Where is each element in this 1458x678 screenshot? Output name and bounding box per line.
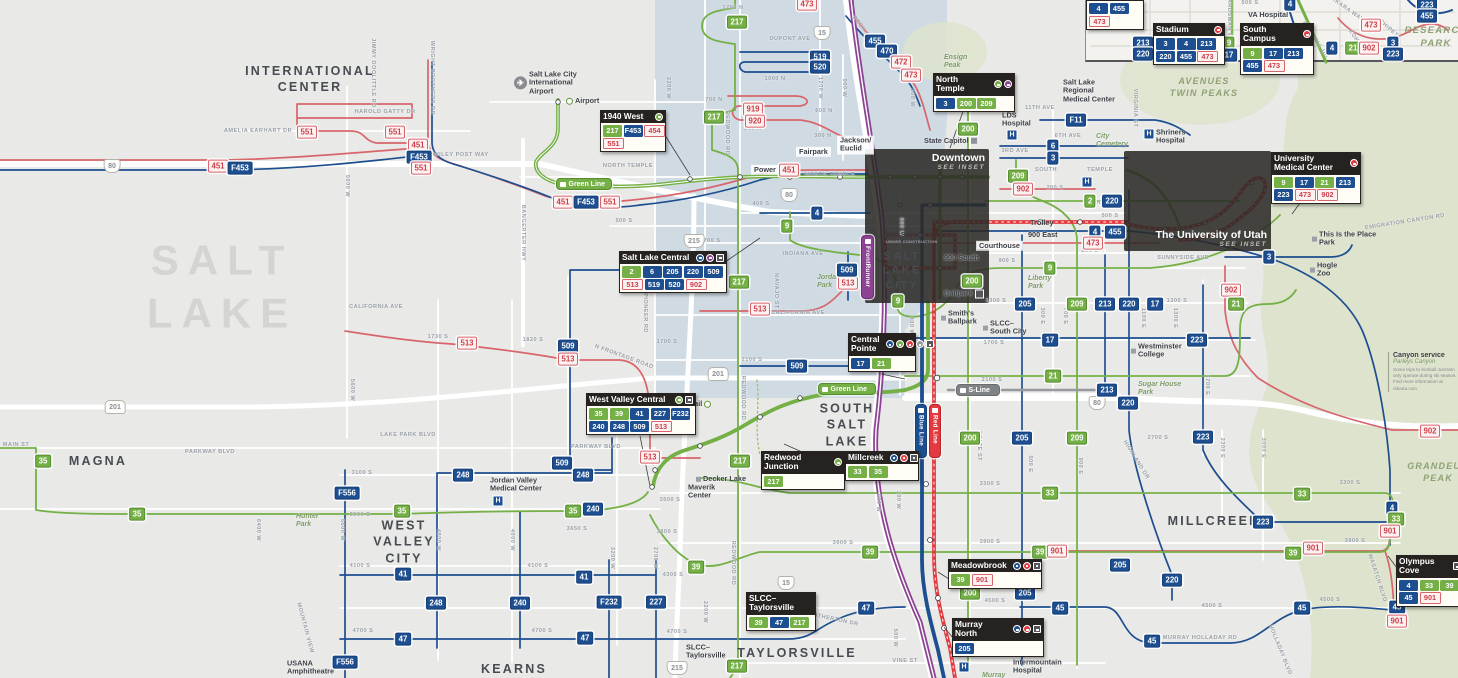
sq-icon — [1312, 237, 1317, 242]
street-label: 3500 S — [350, 512, 371, 518]
street-label: 2300 E — [1219, 438, 1225, 459]
hospital-icon: H — [493, 496, 504, 507]
blue-line-icon — [1013, 625, 1021, 633]
region-label: RESEARCH PARK — [1405, 25, 1458, 51]
route-badge-220: 220 — [1156, 51, 1175, 62]
callout-body: 3200209 — [933, 96, 1015, 112]
place-label: State Capitol — [924, 137, 977, 145]
route-badge-3: 3 — [1156, 38, 1175, 49]
route-badge-39: 39 — [1440, 580, 1458, 591]
place-label-text: Courthouse — [979, 242, 1020, 250]
hospital-icon: H — [1082, 177, 1093, 188]
street-label: WILEY POST WAY — [433, 152, 488, 158]
inset-label: DowntownSEE INSET — [932, 152, 985, 171]
place-label: VA Hospital — [1248, 11, 1288, 19]
callout-route-row: 513519520902 — [622, 279, 724, 290]
street-label: REDWOOD RD — [740, 376, 746, 420]
route-badge-473: 473 — [1197, 51, 1218, 62]
route-badge-513: 513 — [457, 337, 477, 350]
place-label-text: SLCC– Taylorsville — [686, 644, 726, 661]
route-badge-902: 902 — [1420, 425, 1440, 438]
region-label: GRANDEUR PEAK — [1407, 460, 1458, 484]
route-badge-509: 509 — [558, 340, 578, 353]
station-callout-slcc-taylorsville: SLCC–Taylorsville3947217 — [746, 592, 816, 631]
street-label: 5600 W — [339, 519, 345, 541]
highway-shield-80: 80 — [781, 188, 798, 202]
route-badge-35: 35 — [35, 455, 51, 468]
route-badge-4: 4 — [1177, 38, 1196, 49]
street-label: LAKE PARK BLVD — [380, 432, 436, 438]
street-label: 900 W — [841, 79, 847, 98]
route-badge-451: 451 — [208, 160, 228, 173]
street-label: 1700 S — [657, 339, 678, 345]
train-icon — [932, 408, 938, 413]
street-label: 1000 N — [764, 76, 785, 82]
street-label: 900 S — [998, 258, 1015, 264]
route-badge-509: 509 — [552, 457, 572, 470]
place-label-text: Maverik Center — [688, 484, 715, 501]
station-callout-redwood-junction: Redwood Junction217 — [761, 451, 845, 490]
place-label: ✈Salt Lake City International Airport — [514, 70, 577, 95]
route-badge-551: 551 — [411, 162, 431, 175]
place-label-text: Jordan Park — [817, 274, 840, 290]
callout-route-row: 4455 — [1089, 3, 1141, 14]
place-label-text: Jordan Valley Medical Center — [490, 477, 542, 494]
callout-body: 353941227F232240248509513 — [586, 406, 696, 435]
callout-route-row: 3335 — [848, 466, 916, 477]
route-badge-240: 240 — [583, 503, 603, 516]
place-label: Jordan Valley Medical Center — [490, 477, 542, 494]
route-badge-f232: F232 — [671, 408, 690, 419]
frontrunner-icon — [1004, 80, 1012, 88]
route-badge-9: 9 — [781, 220, 792, 233]
place-label-text: Westminster College — [1138, 343, 1182, 360]
place-label-text: Salt Lake City International Airport — [529, 70, 577, 95]
place-label-text: Jackson/ Euclid — [840, 137, 871, 154]
route-badge-21: 21 — [872, 358, 891, 369]
callout-route-row: 34213 — [1156, 38, 1222, 49]
green-line-icon — [834, 458, 842, 466]
callout-title: Murray North — [955, 620, 1007, 639]
route-badge-f11: F11 — [1066, 114, 1086, 127]
street-label: MAIN ST — [3, 442, 30, 448]
rail-icon — [926, 340, 934, 348]
route-badge-21: 21 — [1315, 177, 1334, 188]
hospital-icon: H — [1007, 130, 1018, 141]
route-badge-223: 223 — [1274, 189, 1293, 200]
route-badge-248: 248 — [453, 469, 473, 482]
route-badge-33: 33 — [1042, 487, 1058, 500]
street-label: 3300 S — [1340, 480, 1361, 486]
street-label: WRIGHT BROTHERS DR — [429, 41, 435, 115]
street-label: 2200 W — [665, 77, 671, 99]
street-label: 5600 W — [349, 379, 355, 401]
street-label: 2100 S — [742, 357, 763, 363]
callout-body: 34213220455473 — [1153, 36, 1225, 65]
route-badge-41: 41 — [395, 568, 411, 581]
callout-header: Millcreek — [845, 451, 919, 464]
route-badge-2: 2 — [1084, 195, 1095, 208]
street-label: 500 S — [1241, 0, 1258, 6]
street-label: 11TH AVE — [1025, 105, 1055, 111]
route-badge-473: 473 — [1361, 19, 1381, 32]
callout-header: South Campus — [1240, 23, 1314, 46]
street-label: 4500 S — [985, 598, 1006, 604]
sq-icon — [983, 326, 988, 331]
station-callout-south-campus: South Campus917213455473 — [1240, 23, 1314, 75]
place-label: Courthouse — [977, 242, 1022, 250]
street-label: TEMPLE — [1087, 167, 1113, 173]
inset-see-inset-label: SEE INSET — [1156, 241, 1267, 248]
sq-icon — [1310, 268, 1315, 273]
station-callout-cut-box: 4455473 — [1086, 0, 1144, 30]
route-badge-39: 39 — [1032, 546, 1048, 559]
street-label: 3RD AVE — [1001, 148, 1028, 154]
highway-shield-201: 201 — [105, 400, 126, 414]
street-label: 6TH AVE — [1055, 133, 1082, 139]
inset-overlay-university-of-utah: The University of UtahSEE INSET — [1124, 151, 1271, 251]
route-badge-9: 9 — [1274, 177, 1293, 188]
route-badge-513: 513 — [838, 277, 858, 290]
place-label: Jordan Park — [817, 274, 840, 290]
callout-header: Meadowbrook — [948, 559, 1042, 572]
place-label: Shriners Hospital — [1156, 129, 1186, 146]
place-label-text: Airport — [575, 97, 599, 105]
place-label: SLCC– South City — [983, 320, 1026, 337]
place-label-text: City Cemetery — [1096, 133, 1128, 149]
street-label: 300 N — [814, 133, 831, 139]
street-label: SOUTH — [1035, 167, 1057, 173]
callout-route-row: 1721 — [851, 358, 913, 369]
street-label: HIGHLAND DR — [1122, 439, 1151, 480]
route-badge-17: 17 — [1147, 298, 1163, 311]
street-label: 4700 S — [353, 628, 374, 634]
route-badge-902: 902 — [1013, 183, 1033, 196]
callout-body: 91721213223473902 — [1271, 175, 1361, 204]
callout-route-row: 551 — [603, 138, 663, 149]
route-badge-513: 513 — [622, 279, 643, 290]
place-label: Hogle Zoo — [1310, 262, 1337, 279]
inset-title: Downtown — [932, 152, 985, 164]
route-badge-551: 551 — [603, 138, 624, 149]
street-label: INDIANA AVE — [782, 251, 823, 257]
route-badge-45: 45 — [1399, 592, 1418, 603]
route-badge-200: 200 — [957, 98, 976, 109]
route-badge-513: 513 — [750, 303, 770, 316]
callout-body: 4333945901 — [1396, 578, 1458, 607]
route-badge-473: 473 — [1089, 16, 1110, 27]
route-badge-9: 9 — [1223, 37, 1234, 50]
street-label: 5600 W — [344, 175, 350, 197]
route-badge-220: 220 — [1133, 48, 1153, 61]
route-badge-213: 213 — [1097, 384, 1117, 397]
bld-icon — [971, 138, 977, 144]
route-badge-205: 205 — [1015, 298, 1035, 311]
street-label: 3000 E — [1260, 438, 1266, 459]
rail-icon — [1033, 562, 1041, 570]
street-label: 1300 E — [1172, 308, 1178, 329]
street-label: MURRAY HOLLADAY RD — [1163, 635, 1238, 641]
route-badge-39: 39 — [1285, 547, 1301, 560]
callout-route-row: 353941227F232 — [589, 408, 693, 419]
callout-body: 917213455473 — [1240, 46, 1314, 75]
callout-route-row: 26205220509 — [622, 266, 724, 277]
rail-icon — [1033, 625, 1041, 633]
route-badge-520: 520 — [810, 61, 830, 74]
street-label: 1300 S — [986, 298, 1007, 304]
place-label: 900 South — [944, 254, 979, 262]
callout-route-row: 3200209 — [936, 98, 1012, 109]
train-icon — [865, 239, 871, 244]
station-callout-olympus-cove: Olympus Cove4333945901 — [1396, 555, 1458, 607]
route-badge-519: 519 — [645, 279, 664, 290]
line-pill-frontrunner: FrontRunner — [861, 235, 874, 299]
highway-shield-80: 80 — [104, 159, 121, 173]
sq-icon — [696, 476, 701, 481]
route-badge-35: 35 — [129, 508, 145, 521]
station-callout-university-medical-center: University Medical Center917212132234739… — [1271, 152, 1361, 204]
route-badge-551: 551 — [385, 126, 405, 139]
route-badge-33: 33 — [848, 466, 867, 477]
route-badge-21: 21 — [1228, 298, 1244, 311]
street-label: WAKARA WAY — [1325, 0, 1364, 23]
callout-route-row: 473 — [1089, 16, 1141, 27]
place-label: Ensign Peak — [944, 54, 967, 70]
place-label: Liberty Park — [1028, 275, 1051, 291]
route-badge-901: 901 — [1303, 542, 1323, 555]
route-badge-217: 217 — [704, 111, 724, 124]
street-label: CALIFORNIA AVE — [349, 304, 403, 310]
place-label-text: State Capitol — [924, 137, 969, 145]
place-label-text: Ensign Peak — [944, 54, 967, 70]
route-badge-47: 47 — [577, 632, 593, 645]
callout-header: West Valley Central — [586, 393, 696, 406]
callout-title: West Valley Central — [589, 395, 665, 404]
place-label-text: Trolley — [1030, 219, 1054, 227]
place-label: Fairpark — [797, 148, 830, 156]
route-badge-220: 220 — [1102, 195, 1122, 208]
callout-route-row: 3947217 — [749, 617, 813, 628]
callout-route-row: 43339 — [1399, 580, 1458, 591]
street-label: 200 S — [1046, 185, 1063, 191]
route-badge-551: 551 — [297, 126, 317, 139]
street-label: N FRONTAGE ROAD — [594, 344, 654, 371]
callout-body: 217F453454551 — [600, 123, 666, 152]
blue-line-icon — [886, 340, 894, 348]
place-label-text: 900 South — [944, 254, 979, 262]
place-label: Smith's Ballpark — [941, 310, 977, 327]
place-label: SLCC– Taylorsville — [686, 644, 726, 661]
region-label: KEARNS — [481, 661, 547, 677]
route-badge-920: 920 — [745, 115, 765, 128]
place-label-text: Hogle Zoo — [1317, 262, 1337, 279]
callout-title: University Medical Center — [1274, 154, 1333, 173]
route-badge-472: 472 — [891, 56, 911, 69]
canyon-note-subtitle: Parleys Canyon — [1393, 359, 1458, 365]
place-label-text: 900 East — [1028, 231, 1058, 239]
route-badge-209: 209 — [1067, 432, 1087, 445]
red-line-icon — [1214, 26, 1222, 34]
route-badge-217: 217 — [790, 617, 809, 628]
place-label: This Is the Place Park — [1312, 231, 1376, 248]
route-badge-473: 473 — [901, 69, 921, 82]
callout-body: 205 — [952, 641, 1044, 657]
route-badge-227: 227 — [646, 596, 666, 609]
street-label: 1700 N — [722, 5, 743, 11]
green-line-icon — [994, 80, 1002, 88]
callout-header: Redwood Junction — [761, 451, 845, 474]
route-badge-248: 248 — [573, 469, 593, 482]
train-icon — [918, 408, 924, 413]
s-line-icon — [916, 340, 924, 348]
map-labels-layer: Canyon service Parleys Canyon Some trips… — [0, 0, 1458, 678]
place-label: Maverik Center — [688, 484, 715, 501]
route-badge-223: 223 — [1253, 516, 1273, 529]
street-label: 4300 S — [663, 572, 684, 578]
street-label: 2100 S — [982, 377, 1003, 383]
route-badge-200: 200 — [960, 432, 980, 445]
street-label: 700 W — [895, 491, 901, 510]
place-label: Intermountain Hospital — [1013, 659, 1062, 676]
route-badge-17: 17 — [1295, 177, 1314, 188]
street-label: 4000 W — [509, 529, 515, 551]
station-callout-central-pointe: Central Pointe1721 — [848, 333, 916, 372]
red-line-icon — [906, 340, 914, 348]
route-badge-213: 213 — [1197, 38, 1216, 49]
canyon-note-title: Canyon service — [1393, 352, 1458, 359]
frontrunner-icon — [706, 254, 714, 262]
sq-icon — [941, 316, 946, 321]
route-badge-451: 451 — [553, 196, 573, 209]
dot-icon — [566, 97, 573, 104]
street-label: 4500 S — [1202, 603, 1223, 609]
route-badge-200: 200 — [958, 123, 978, 136]
place-label-text: USANA Amphitheatre — [287, 660, 334, 677]
route-badge-213: 213 — [1095, 298, 1115, 311]
route-badge-f556: F556 — [333, 656, 358, 669]
route-badge-240: 240 — [589, 421, 608, 432]
street-label: 4700 S — [667, 629, 688, 635]
street-label: NORTH TEMPLE — [603, 163, 653, 169]
street-label: AMELIA EARHART DR — [224, 128, 292, 134]
train-icon — [960, 388, 966, 393]
street-label: WASATCH BLVD — [1366, 553, 1387, 603]
route-badge-4: 4 — [1326, 42, 1337, 55]
route-badge-f556: F556 — [335, 487, 360, 500]
street-label: 6400 W — [255, 519, 261, 541]
callout-header: SLCC–Taylorsville — [746, 592, 816, 615]
street-label: 500 S — [615, 218, 632, 224]
place-label-text: Salt Lake Regional Medical Center — [1063, 78, 1115, 103]
route-badge-33: 33 — [1294, 488, 1310, 501]
route-badge-451: 451 — [408, 139, 428, 152]
hospital-icon: H — [1144, 129, 1155, 140]
region-label: SOUTH SALT LAKE — [820, 401, 875, 450]
highway-shield-80: 80 — [1089, 396, 1106, 410]
route-badge-35: 35 — [565, 505, 581, 518]
street-label: EMIGRATION CANYON RD — [1365, 213, 1446, 232]
street-label: VINE ST — [892, 658, 917, 664]
blue-line-icon — [696, 254, 704, 262]
street-label: 3650 S — [567, 526, 588, 532]
route-badge-3: 3 — [1263, 251, 1274, 264]
callout-route-row: 217F453454 — [603, 125, 663, 136]
station-callout-west-valley-central: West Valley Central353941227F23224024850… — [586, 393, 696, 435]
street-label: 4500 S — [1320, 597, 1341, 603]
pr-icon — [975, 290, 984, 299]
line-pill-label: Blue Line — [918, 415, 925, 446]
callout-route-row: 220455473 — [1156, 51, 1222, 62]
route-badge-901: 901 — [1387, 615, 1407, 628]
red-line-icon — [900, 454, 908, 462]
route-badge-205: 205 — [1110, 559, 1130, 572]
street-label: 3200 W — [609, 547, 615, 569]
place-label-text: Smith's Ballpark — [948, 310, 977, 327]
callout-route-row: 39901 — [951, 574, 1039, 585]
route-badge-6: 6 — [643, 266, 662, 277]
street-label: 700 N — [705, 97, 722, 103]
street-label: 2200 W — [702, 601, 708, 623]
canyon-service-note: Canyon service Parleys Canyon Some trips… — [1388, 352, 1458, 392]
red-line-icon — [1303, 30, 1311, 38]
green-line-icon — [675, 396, 683, 404]
plane-icon: ✈ — [514, 76, 527, 89]
station-callout-1940-west: 1940 West217F453454551 — [600, 110, 666, 152]
region-label: AVENUES TWIN PEAKS — [1170, 75, 1239, 99]
route-badge-520: 520 — [665, 279, 684, 290]
route-badge-45: 45 — [1294, 602, 1310, 615]
street-label: 500 W — [892, 629, 898, 648]
street-label: 900 W — [875, 494, 881, 513]
street-label: 300 W — [909, 89, 915, 108]
route-badge-509: 509 — [630, 421, 649, 432]
line-pill-label: FrontRunner — [864, 246, 871, 287]
route-badge-33: 33 — [1420, 580, 1439, 591]
route-badge-209: 209 — [977, 98, 996, 109]
highway-shield-201: 201 — [708, 367, 729, 381]
callout-body: 3335 — [845, 464, 919, 480]
place-label-text: Fairpark — [799, 148, 828, 156]
callout-route-row: 223473902 — [1274, 189, 1358, 200]
train-icon — [560, 182, 566, 187]
street-label: 900 E — [1077, 457, 1083, 474]
route-badge-513: 513 — [640, 451, 660, 464]
route-badge-9: 9 — [1243, 48, 1262, 59]
line-pill-red-line: Red Line — [929, 404, 941, 458]
callout-body: 1721 — [848, 356, 916, 372]
construction-note: 600 South UNDER CONSTRUCTION — [886, 230, 938, 244]
place-label: Murray — [982, 672, 1005, 678]
street-label: HOLLADAY BLVD — [1267, 624, 1293, 676]
highway-shield-15: 15 — [814, 26, 831, 40]
red-line-icon — [1023, 562, 1031, 570]
line-pill-label: Red Line — [932, 415, 939, 444]
green-line-icon — [655, 113, 663, 121]
route-badge-451: 451 — [779, 164, 799, 177]
street-label: 700 S — [703, 238, 720, 244]
route-badge-3: 3 — [936, 98, 955, 109]
route-badge-33: 33 — [1388, 513, 1404, 526]
callout-title: Meadowbrook — [951, 561, 1007, 570]
route-badge-902: 902 — [686, 279, 707, 290]
line-pill-blue-line: Blue Line — [915, 404, 927, 458]
inset-label: The University of UtahSEE INSET — [1156, 229, 1267, 248]
street-label: 4100 S — [528, 563, 549, 569]
route-badge-205: 205 — [1012, 432, 1032, 445]
route-badge-3: 3 — [1047, 152, 1058, 165]
street-label: PIONEER RD — [642, 293, 648, 333]
route-badge-901: 901 — [1047, 545, 1067, 558]
